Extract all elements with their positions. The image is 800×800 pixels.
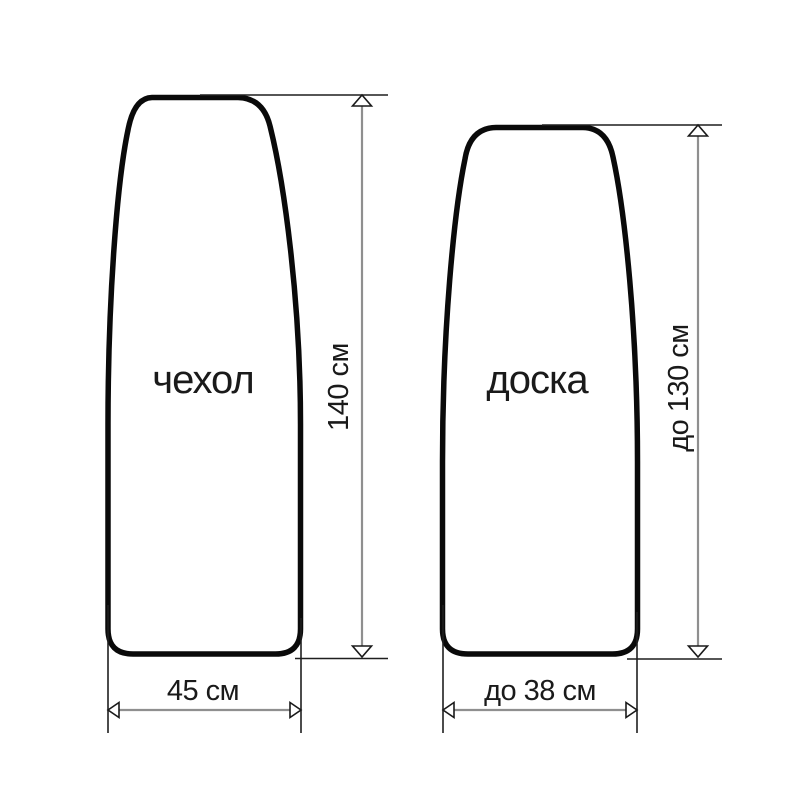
board-width-label: до 38 см [484,675,596,707]
ironing-board-size-diagram: чехол доска 140 см 45 см [0,0,800,800]
cover-height-arrowhead-up-icon [353,95,372,106]
board-label: доска [486,358,589,402]
cover-width-arrowhead-right-icon [290,703,301,718]
cover-height-label: 140 см [323,343,355,431]
cover-label: чехол [152,358,253,402]
board-height-label: до 130 см [663,324,695,452]
board-height-arrowhead-up-icon [689,125,708,136]
cover-width-label: 45 см [167,675,239,707]
cover-height-arrowhead-down-icon [353,646,372,657]
diagram-canvas: чехол доска 140 см 45 см [0,0,800,800]
cover-width-arrowhead-left-icon [108,703,119,718]
board-width-arrowhead-left-icon [443,703,454,718]
board-shape-group: доска [443,128,638,655]
board-width-arrowhead-right-icon [626,703,637,718]
board-height-arrowhead-down-icon [689,646,708,657]
cover-shape-group: чехол [108,98,301,655]
